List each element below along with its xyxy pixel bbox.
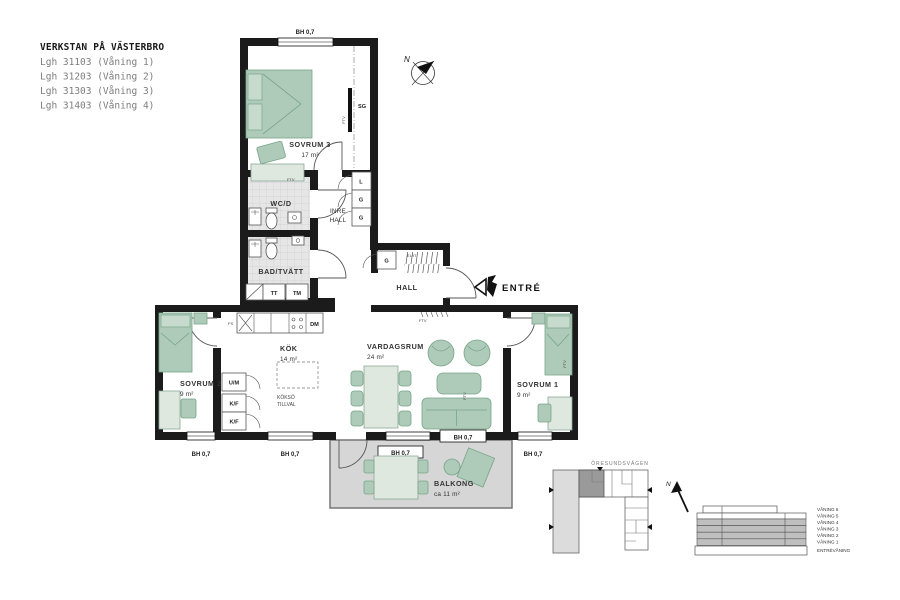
appliance-label: K/F (229, 420, 239, 426)
bh-label: BH 0,7 (192, 452, 211, 458)
chair-icon (181, 399, 196, 418)
elit-cabinet: EL/IT (404, 252, 440, 273)
window (278, 38, 333, 46)
elevation-floor-highlight (697, 526, 806, 533)
floorplan-page: VERKSTAN PÅ VÄSTERBRO Lgh 31103 (Våning … (0, 0, 900, 600)
room-area: ca 11 m² (434, 491, 460, 498)
elevation-entrance-floor (695, 546, 807, 555)
wall-segment (552, 432, 578, 440)
floor-label: VÅNING 2 (817, 532, 839, 538)
kokso-label: KÖKSÖ (277, 394, 295, 401)
floorplan-drawing: VERKSTAN PÅ VÄSTERBRO Lgh 31103 (Våning … (0, 0, 900, 600)
window-bh-box: BH 0,7 (440, 430, 486, 442)
wall-segment (370, 243, 450, 250)
closet-label: G (359, 216, 363, 222)
wall-segment (240, 38, 278, 46)
toilet-icon (266, 238, 277, 259)
desk-icon (159, 391, 180, 429)
sg-label: SG (358, 104, 366, 110)
wall-segment (430, 432, 440, 440)
sofa-icon (422, 398, 491, 429)
room-area: 9 m² (517, 392, 531, 399)
side-table-icon (194, 313, 207, 324)
room-label: SOVRUM 1 (517, 380, 559, 389)
ftv-label: FTV (419, 318, 427, 323)
apartment-line: Lgh 31403 (Våning 4) (40, 101, 154, 112)
wall-segment (155, 432, 187, 440)
room-label: KÖK (280, 344, 298, 353)
room-area: 17 m² (301, 152, 318, 159)
window (187, 432, 215, 440)
door-opening (443, 266, 450, 298)
site-plan: ÖRESUNDSVÄGEN N (549, 460, 688, 553)
room-label: SOVRUM 2 (180, 379, 222, 388)
round-table-icon (444, 459, 460, 475)
apartment-line: Lgh 31203 (Våning 2) (40, 72, 154, 83)
ftv-label: FTV (562, 360, 567, 368)
wall-segment (443, 250, 450, 266)
floor-label: VÅNING 4 (817, 519, 839, 525)
coffee-table-icon (437, 373, 481, 394)
wall-segment (310, 170, 318, 190)
site-building-wing (553, 470, 579, 553)
toilet-icon (266, 208, 277, 229)
floor-label: VÅNING 1 (817, 539, 839, 545)
chair-icon (538, 404, 551, 422)
floor-label: ENTRÉVÅNING (817, 547, 851, 553)
wall-segment (503, 348, 511, 432)
wall-segment (486, 432, 518, 440)
shaft-icon (246, 284, 263, 300)
washer-icon: TM (286, 284, 308, 300)
door-entrance (443, 266, 476, 298)
closet-label: G (384, 259, 388, 265)
sink-icon (249, 240, 261, 257)
washbasin-icon (288, 212, 301, 223)
wall-segment (503, 305, 511, 318)
title-block: VERKSTAN PÅ VÄSTERBRO Lgh 31103 (Våning … (40, 42, 164, 112)
bh-label: BH 0,7 (524, 452, 543, 458)
bh-label: BH 0,7 (296, 30, 315, 36)
room-label: SOVRUM 3 (289, 140, 331, 149)
north-letter: N (666, 481, 671, 488)
bh-label: BH 0,7 (454, 436, 473, 442)
dryer-icon: TT (263, 284, 285, 300)
closet-label: L (359, 180, 363, 186)
street-label: ÖRESUNDSVÄGEN (591, 460, 649, 467)
elit-label: EL/IT (407, 253, 417, 258)
dishwasher-label: DM (310, 322, 319, 328)
project-title: VERKSTAN PÅ VÄSTERBRO (40, 42, 164, 53)
dryer-label: TT (271, 291, 278, 297)
wall-segment (313, 432, 336, 440)
side-table-icon (532, 313, 545, 324)
double-bed-icon (246, 70, 312, 138)
bed-icon (545, 314, 572, 375)
room-label: WC/D (270, 199, 291, 208)
north-arrow-icon: N (666, 481, 688, 512)
washer-label: TM (293, 291, 301, 297)
appliance-label: U/M (229, 381, 240, 387)
floor-label: VÅNING 5 (817, 513, 839, 519)
site-building-right (625, 497, 648, 550)
wall-segment (213, 305, 221, 318)
cabinet-icon (292, 236, 304, 245)
compass-icon: N (404, 55, 435, 85)
entre-arrow-icon (475, 275, 497, 297)
apartment-line: Lgh 31303 (Våning 3) (40, 86, 154, 97)
appliance-label: K/F (229, 402, 239, 408)
room-area: 24 m² (367, 354, 384, 361)
tillval-label: TILLVAL (277, 402, 296, 408)
room-label: BAD/TVÄTT (258, 267, 303, 276)
elevation-diagram: VÅNING 6 VÅNING 5 VÅNING 4 VÅNING 3 VÅNI… (695, 506, 851, 555)
window (268, 432, 313, 440)
window (518, 432, 552, 440)
bed-icon (159, 313, 192, 372)
dining-table-icon (351, 366, 411, 428)
wall-segment (366, 432, 386, 440)
elevation-floor (697, 513, 806, 519)
elevation-floor-highlight (697, 519, 806, 526)
fs-label: FS (228, 321, 233, 326)
entre-label: ENTRÉ (502, 283, 541, 294)
ftv-label: FTV (287, 177, 295, 182)
closet-label: G (359, 198, 363, 204)
sink-icon (249, 208, 261, 225)
wall-segment (213, 348, 221, 432)
room-label: VARDAGSRUM (367, 342, 424, 351)
ftv-label: FTV (341, 116, 346, 124)
elevation-floor-highlight (697, 532, 806, 539)
floor-label: VÅNING 6 (817, 506, 839, 512)
window (386, 432, 430, 440)
north-letter: N (404, 55, 410, 64)
room-label: HALL (396, 283, 417, 292)
wall-segment (215, 432, 268, 440)
armchair-icon (464, 340, 490, 366)
wall-segment (310, 218, 318, 250)
apartment-line: Lgh 31103 (Våning 1) (40, 57, 154, 68)
ftv-label: FTV (462, 392, 467, 400)
balcony-table-icon (364, 456, 428, 499)
desk-icon (548, 397, 572, 430)
room-label: BALKONG (434, 479, 474, 488)
armchair-icon (428, 340, 454, 366)
bh-label: BH 0,7 (281, 452, 300, 458)
elevation-floor-highlight (697, 539, 806, 546)
elevation-floor (703, 506, 777, 513)
kitchen-bench: DM (237, 313, 323, 333)
highlighted-apartment (579, 470, 604, 497)
wall-segment (371, 305, 578, 312)
floor-label: VÅNING 3 (817, 526, 839, 532)
wall-segment (155, 305, 240, 312)
room-area: 9 m² (180, 391, 194, 398)
